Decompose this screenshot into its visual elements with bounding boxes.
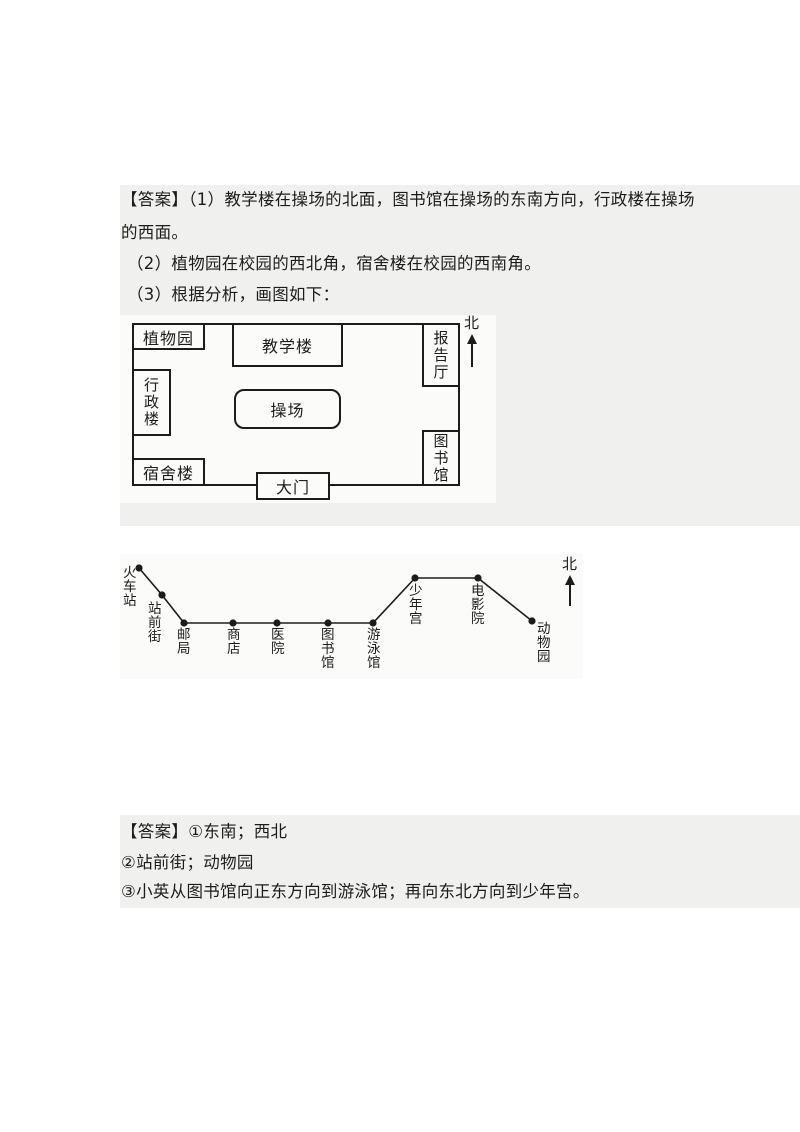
campus-map-diagram: 植物园教学楼报告厅行政楼操场宿舍楼大门图书馆北 [120, 315, 496, 503]
campus-north-label: 北 [464, 315, 479, 331]
route-stop-dot [324, 619, 331, 626]
answer1-line-2: 的西面。 [121, 223, 188, 242]
route-stop-label: 少年宫 [409, 584, 423, 626]
north-arrow-icon [467, 334, 477, 344]
route-stop-dot [411, 574, 418, 581]
label-char: 厅 [433, 364, 448, 381]
label-char: 影 [471, 598, 485, 612]
campus-building-library: 图书馆 [422, 430, 460, 486]
label-char: 火 [123, 566, 137, 580]
route-stop-dot [229, 619, 236, 626]
answer2-line-3: ③小英从图书馆向正东方向到游泳馆；再向东北方向到少年宫。 [121, 882, 590, 901]
label-char: 街 [148, 630, 162, 644]
route-stop-dot [180, 619, 187, 626]
label-char: 院 [271, 642, 285, 656]
label-char: 车 [123, 580, 137, 594]
answer2-line-2: ②站前街；动物园 [121, 853, 254, 872]
campus-building-label: 行政楼 [144, 377, 159, 428]
label-char: 图 [321, 628, 335, 642]
route-stop-label: 火车站 [123, 566, 137, 608]
label-char: 电 [471, 584, 485, 598]
campus-building-label: 图书馆 [433, 433, 448, 484]
label-char: 邮 [177, 628, 191, 642]
route-stop-dot [273, 619, 280, 626]
route-stop-label: 图书馆 [321, 628, 335, 670]
campus-building-admin-building: 行政楼 [132, 369, 171, 436]
route-stop-label: 医院 [271, 628, 285, 656]
label-char: 站 [148, 602, 162, 616]
label-char: 书 [321, 642, 335, 656]
campus-building-label: 植物园 [143, 325, 194, 349]
route-north-indicator: 北 [562, 556, 577, 606]
label-char: 少 [409, 584, 423, 598]
label-char: 告 [433, 347, 448, 364]
label-char: 年 [409, 598, 423, 612]
route-stop-label: 动物园 [537, 622, 551, 664]
answer2-panel: 【答案】①东南；西北 ②站前街；动物园 ③小英从图书馆向正东方向到游泳馆；再向东… [120, 815, 800, 908]
campus-building-lecture-hall: 报告厅 [422, 323, 460, 387]
campus-building-playground: 操场 [234, 389, 341, 429]
answer1-line-3: （2）植物园在校园的西北角，宿舍楼在校园的西南角。 [127, 254, 541, 273]
label-char: 园 [537, 650, 551, 664]
label-char: 馆 [433, 467, 448, 484]
label-char: 行 [144, 377, 159, 394]
route-path-svg [120, 554, 583, 679]
label-char: 楼 [144, 411, 159, 428]
label-char: 院 [471, 612, 485, 626]
route-stop-label: 邮局 [177, 628, 191, 656]
label-char: 物 [537, 636, 551, 650]
campus-building-dormitory: 宿舍楼 [132, 458, 205, 486]
north-arrow-shaft [471, 344, 473, 367]
label-char: 店 [227, 642, 241, 656]
label-char: 游 [367, 628, 381, 642]
campus-building-label: 教学楼 [262, 333, 313, 357]
answer2-line-1: 【答案】①东南；西北 [121, 822, 287, 841]
label-char: 图 [433, 433, 448, 450]
north-arrow-shaft [569, 585, 571, 606]
answer1-line-4: （3）根据分析，画图如下： [127, 285, 339, 304]
north-arrow-icon [565, 575, 575, 585]
label-char: 泳 [367, 642, 381, 656]
route-stop-dot [158, 591, 165, 598]
campus-north-indicator: 北 [464, 315, 479, 367]
campus-building-label: 操场 [270, 397, 304, 421]
label-char: 政 [144, 394, 159, 411]
campus-building-label: 大门 [276, 474, 310, 498]
route-stop-label: 电影院 [471, 584, 485, 626]
label-char: 商 [227, 628, 241, 642]
route-stop-label: 游泳馆 [367, 628, 381, 670]
route-stop-label: 商店 [227, 628, 241, 656]
route-stop-dot [369, 619, 376, 626]
campus-building-label: 报告厅 [433, 330, 448, 381]
campus-building-label: 宿舍楼 [143, 460, 194, 484]
label-char: 医 [271, 628, 285, 642]
campus-building-gate: 大门 [256, 472, 330, 500]
label-char: 动 [537, 622, 551, 636]
label-char: 宫 [409, 612, 423, 626]
label-char: 馆 [367, 656, 381, 670]
label-char: 前 [148, 616, 162, 630]
route-stop-dot [528, 617, 535, 624]
route-stop-dot [474, 574, 481, 581]
label-char: 馆 [321, 656, 335, 670]
campus-building-botanical-garden: 植物园 [132, 323, 205, 350]
route-north-label: 北 [562, 556, 577, 572]
campus-building-teaching-building: 教学楼 [232, 323, 343, 367]
label-char: 书 [433, 450, 448, 467]
label-char: 站 [123, 594, 137, 608]
label-char: 报 [433, 330, 448, 347]
answer1-line-1: 【答案】（1）教学楼在操场的北面，图书馆在操场的东南方向，行政楼在操场 [121, 190, 695, 209]
route-stop-label: 站前街 [148, 602, 162, 644]
label-char: 局 [177, 642, 191, 656]
answer1-panel: 【答案】（1）教学楼在操场的北面，图书馆在操场的东南方向，行政楼在操场 的西面。… [120, 185, 800, 526]
route-map-diagram: 火车站站前街邮局商店医院图书馆游泳馆少年宫电影院动物园北 [120, 554, 583, 679]
